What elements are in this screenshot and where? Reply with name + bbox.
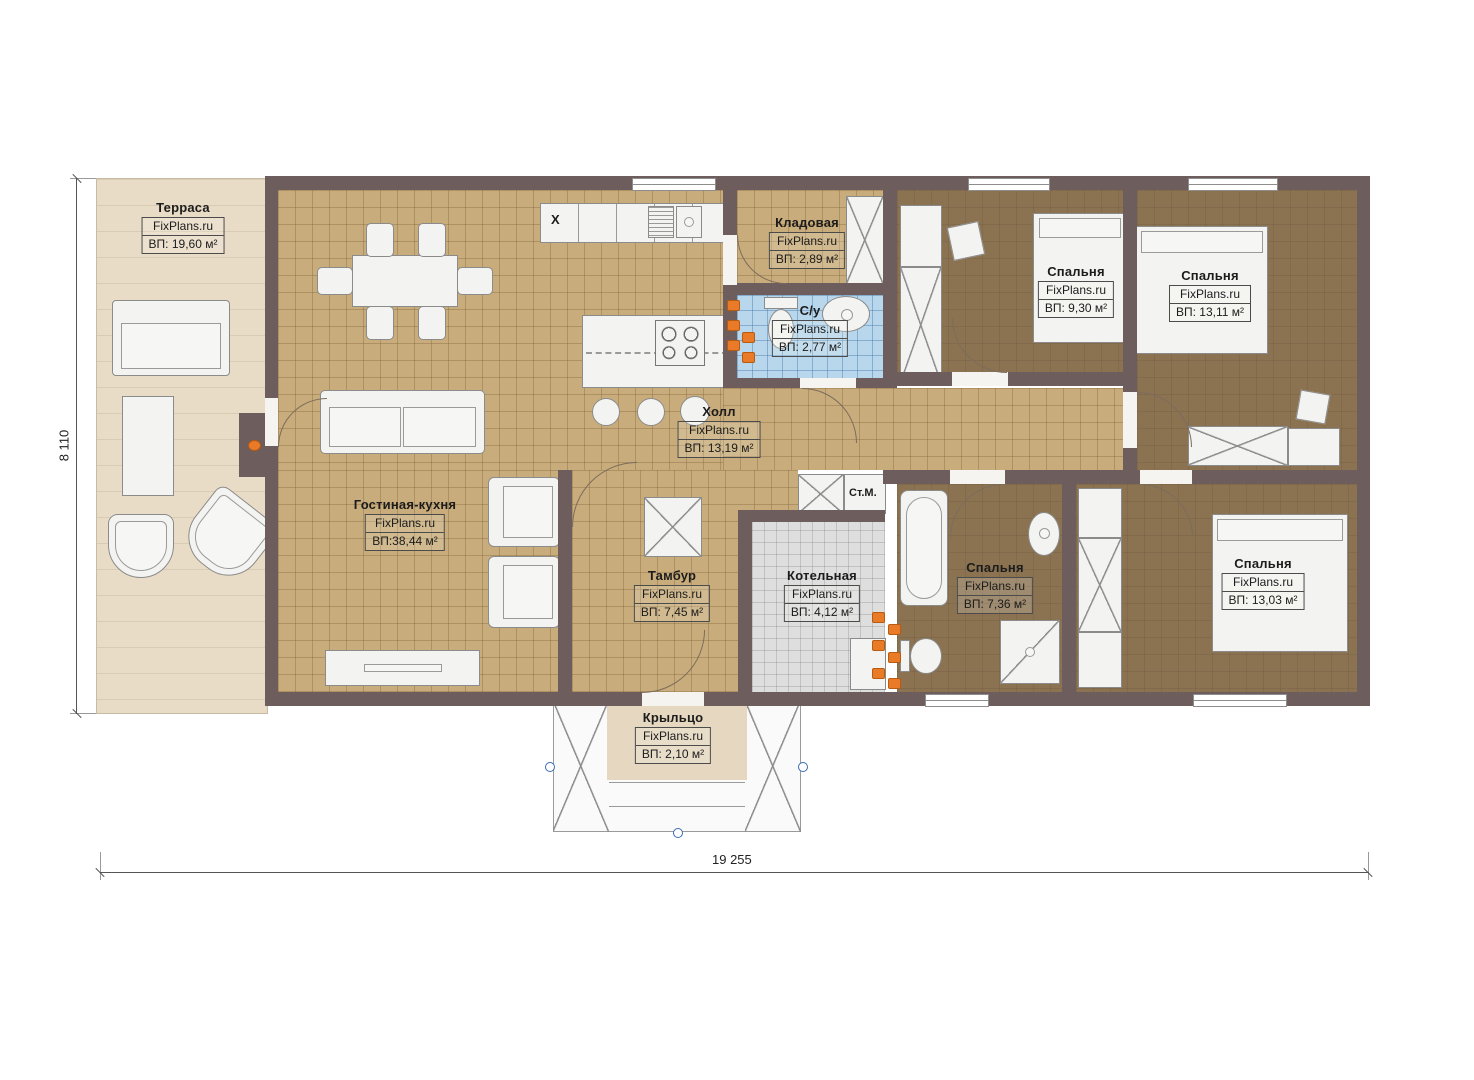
armchair-1	[488, 477, 560, 547]
brand-watermark: FixPlans.ru	[785, 586, 859, 603]
door-gap-storage	[723, 235, 737, 285]
bathroom-toilet-tank	[900, 640, 910, 672]
towel-radiator-dot-2	[727, 320, 740, 331]
room-name: Холл	[678, 404, 761, 419]
porch-roof-left-hip	[553, 700, 609, 832]
boiler-radiator-dot-6	[888, 678, 901, 689]
cooktop-icon	[655, 320, 705, 366]
tv-stand	[325, 650, 480, 686]
room-name: Крыльцо	[635, 710, 711, 725]
window-bedroom-3	[1193, 694, 1287, 707]
room-area: ВП: 2,89 м²	[770, 250, 844, 268]
room-label-vestibule: Тамбур FixPlans.ru ВП: 7,45 м²	[634, 568, 710, 622]
door-gap-bedroom-2	[1123, 392, 1137, 448]
vestibule-closet	[644, 497, 702, 557]
bar-stool-1	[592, 398, 620, 426]
room-label-bathroom: Спальня FixPlans.ru ВП: 7,36 м²	[957, 560, 1033, 614]
washing-machine-label: Ст.М.	[849, 487, 877, 499]
porch-roof-right-hip	[745, 700, 801, 832]
room-label-storage: Кладовая FixPlans.ru ВП: 2,89 м²	[769, 215, 845, 269]
bedroom-1-pillow	[1039, 218, 1121, 238]
height-dimension-line	[76, 178, 77, 714]
dining-chair-top-2	[418, 223, 446, 257]
room-label-porch: Крыльцо FixPlans.ru ВП: 2,10 м²	[635, 710, 711, 764]
wall-bedroom1-bottom	[897, 372, 1137, 386]
armchair-2	[488, 556, 560, 628]
dining-table	[352, 255, 458, 307]
dining-chair-top-1	[366, 223, 394, 257]
room-area: ВП: 7,45 м²	[635, 603, 709, 621]
terrace-sofa	[112, 300, 230, 376]
room-name: Кладовая	[769, 215, 845, 230]
brand-watermark: FixPlans.ru	[958, 578, 1032, 595]
room-area: ВП: 7,36 м²	[958, 595, 1032, 613]
width-dimension-label: 19 255	[712, 852, 752, 867]
boiler-radiator-dot-1	[872, 612, 885, 623]
dining-chair-right	[457, 267, 493, 295]
living-sofa-seat-right	[403, 407, 476, 447]
room-name: Тамбур	[634, 568, 710, 583]
bedroom-1-wardrobe	[900, 205, 942, 267]
wall-bedroom1-bedroom2-divider	[1123, 190, 1137, 386]
door-gap-bedroom-1	[952, 372, 1008, 386]
room-name: С/у	[772, 303, 848, 318]
room-area: ВП:38,44 м²	[366, 532, 444, 550]
bedroom-3-wardrobe-bottom	[1078, 632, 1122, 688]
room-name: Терраса	[142, 200, 225, 215]
bedroom-2-stool	[1296, 390, 1331, 425]
shower-drain	[1025, 647, 1035, 657]
terrace-light-dot	[248, 440, 261, 451]
room-label-bedroom-1: Спальня FixPlans.ru ВП: 9,30 м²	[1038, 264, 1114, 318]
sink-drain	[684, 217, 694, 227]
room-label-boiler: Котельная FixPlans.ru ВП: 4,12 м²	[784, 568, 860, 622]
bedroom-1-wardrobe-lower	[900, 267, 942, 383]
dining-chair-bottom-1	[366, 306, 394, 340]
bedroom-3-wardrobe-mid	[1078, 538, 1122, 632]
room-area: ВП: 2,10 м²	[636, 745, 710, 763]
tv-screen	[364, 664, 442, 672]
wall-vestibule-boiler-divider	[738, 510, 752, 692]
armchair-1-seat	[503, 486, 553, 538]
towel-radiator-dot-4	[742, 332, 755, 343]
dishwasher	[648, 206, 674, 238]
door-gap-bathroom	[950, 470, 1005, 484]
door-gap-bedroom-3	[1140, 470, 1192, 484]
room-name: Гостиная-кухня	[354, 497, 456, 512]
extension-line-top-left	[70, 178, 96, 179]
door-gap-terrace	[265, 398, 278, 446]
shower-tray	[1000, 620, 1060, 684]
room-area: ВП: 13,19 м²	[679, 439, 760, 457]
brand-watermark: FixPlans.ru	[773, 321, 847, 338]
bedroom-2-dresser	[1188, 426, 1288, 466]
window-bedroom-1	[968, 178, 1050, 191]
room-area: ВП: 4,12 м²	[785, 603, 859, 621]
porch-step-line	[609, 782, 745, 783]
wall-boiler-top	[738, 510, 885, 522]
brand-watermark: FixPlans.ru	[1039, 282, 1113, 299]
brand-watermark: FixPlans.ru	[366, 515, 444, 532]
wall-wc-right	[883, 190, 897, 385]
bedroom-1-chair	[947, 221, 985, 261]
room-name: Котельная	[784, 568, 860, 583]
bar-stool-2	[637, 398, 665, 426]
storage-shelving	[846, 196, 884, 284]
selection-handle-bottom[interactable]	[673, 828, 683, 838]
dining-chair-left	[317, 267, 353, 295]
brand-watermark: FixPlans.ru	[143, 218, 224, 235]
room-name: Спальня	[1169, 268, 1251, 283]
kitchen-sink	[676, 206, 702, 238]
extension-line-left-bottom	[100, 852, 101, 880]
room-label-wc: С/у FixPlans.ru ВП: 2,77 м²	[772, 303, 848, 357]
living-sofa	[320, 390, 485, 454]
bedroom-2-pillow	[1141, 231, 1263, 253]
extension-line-bottom-left	[70, 713, 96, 714]
window-bathroom	[925, 694, 989, 707]
bathroom-sink-drain	[1039, 528, 1050, 539]
room-area: ВП: 19,60 м²	[143, 235, 224, 253]
selection-handle-left[interactable]	[545, 762, 555, 772]
boiler-radiator-dot-5	[872, 668, 885, 679]
room-area: ВП: 9,30 м²	[1039, 299, 1113, 317]
hall-floor-patch	[737, 470, 798, 512]
room-label-terrace: Терраса FixPlans.ru ВП: 19,60 м²	[142, 200, 225, 254]
brand-watermark: FixPlans.ru	[635, 586, 709, 603]
room-area: ВП: 13,11 м²	[1170, 303, 1250, 321]
brand-watermark: FixPlans.ru	[636, 728, 710, 745]
brand-watermark: FixPlans.ru	[679, 422, 760, 439]
boiler-radiator-dot-4	[888, 652, 901, 663]
room-label-living-kitchen: Гостиная-кухня FixPlans.ru ВП:38,44 м²	[354, 497, 456, 551]
room-label-hall: Холл FixPlans.ru ВП: 13,19 м²	[678, 404, 761, 458]
armchair-2-seat	[503, 565, 553, 619]
floor-plan-canvas: 8 110 19 255	[0, 0, 1474, 1080]
bedroom-3-wardrobe-top	[1078, 488, 1122, 538]
wall-storage-wc-divider	[723, 283, 890, 295]
towel-radiator-dot-3	[727, 340, 740, 351]
hall-closet	[798, 474, 844, 514]
boiler-radiator-dot-3	[872, 640, 885, 651]
room-name: Спальня	[1038, 264, 1114, 279]
terrace-chair-1	[108, 514, 174, 578]
brand-watermark: FixPlans.ru	[1223, 574, 1304, 591]
bedroom-2-side-unit	[1288, 428, 1340, 466]
bathroom-sink	[1028, 512, 1060, 556]
room-name: Спальня	[957, 560, 1033, 575]
bathtub-basin	[906, 497, 942, 599]
wall-vestibule-left	[558, 470, 572, 692]
appliance-x-mark: X	[551, 212, 560, 227]
room-area: ВП: 2,77 м²	[773, 338, 847, 356]
room-label-bedroom-2: Спальня FixPlans.ru ВП: 13,11 м²	[1169, 268, 1251, 322]
brand-watermark: FixPlans.ru	[770, 233, 844, 250]
living-sofa-seat-left	[329, 407, 401, 447]
brand-watermark: FixPlans.ru	[1170, 286, 1250, 303]
window-kitchen	[632, 178, 716, 191]
selection-handle-right[interactable]	[798, 762, 808, 772]
boiler-radiator-dot-2	[888, 624, 901, 635]
bathroom-toilet-bowl	[910, 638, 942, 674]
room-label-bedroom-3: Спальня FixPlans.ru ВП: 13,03 м²	[1222, 556, 1305, 610]
towel-radiator-dot-5	[742, 352, 755, 363]
terrace-sofa-seat	[121, 323, 221, 369]
towel-radiator-dot-1	[727, 300, 740, 311]
height-dimension-label: 8 110	[56, 430, 71, 462]
door-gap-porch	[642, 692, 704, 706]
room-name: Спальня	[1222, 556, 1305, 571]
hall-floor	[723, 388, 1137, 470]
terrace-coffee-table	[122, 396, 174, 496]
door-gap-wc	[800, 378, 856, 388]
wall-exterior-right	[1357, 176, 1370, 706]
dining-chair-bottom-2	[418, 306, 446, 340]
wall-bathroom-right	[1062, 484, 1076, 692]
extension-line-right-bottom	[1368, 852, 1369, 880]
porch-roof-ridge-line	[609, 806, 745, 807]
bathtub	[900, 490, 948, 606]
window-bedroom-2	[1188, 178, 1278, 191]
width-dimension-line	[100, 872, 1369, 873]
room-area: ВП: 13,03 м²	[1223, 591, 1304, 609]
terrace-chair-1-seat	[115, 521, 167, 571]
bedroom-3-pillow	[1217, 519, 1343, 541]
